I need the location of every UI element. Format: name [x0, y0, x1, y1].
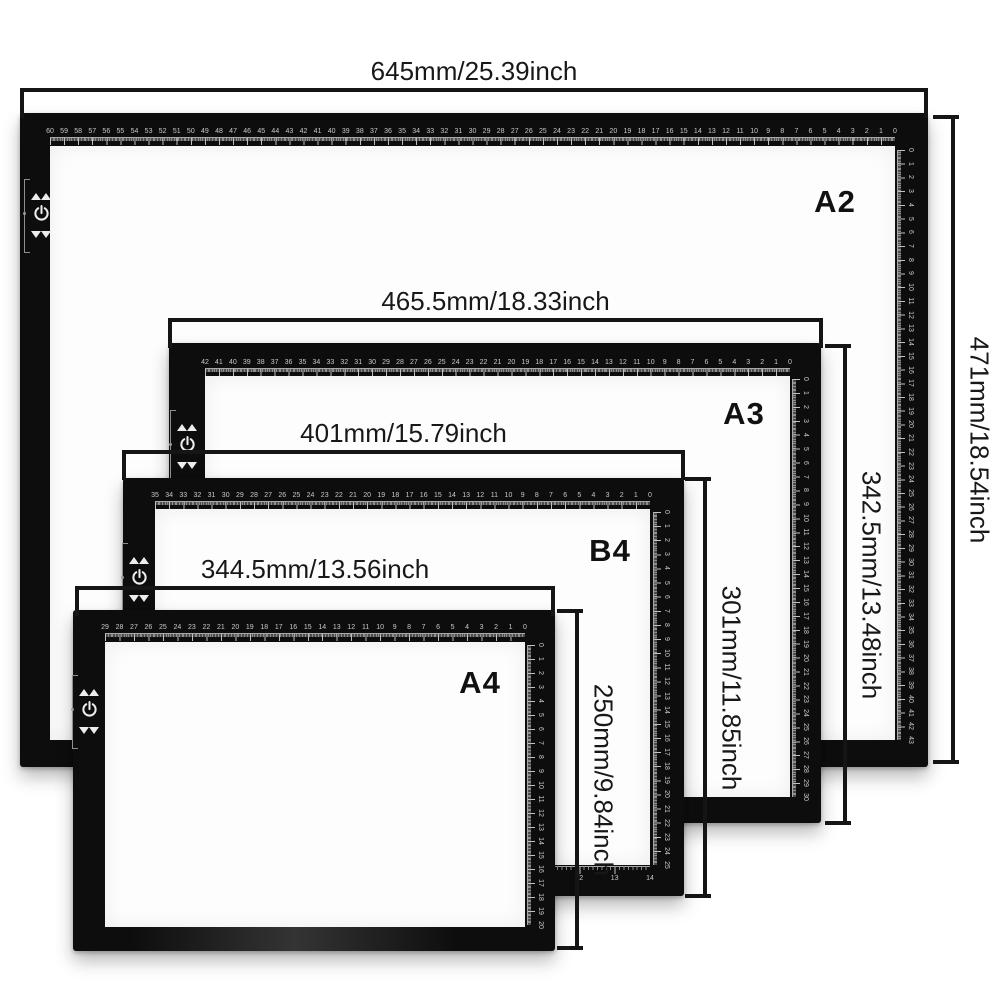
brightness-up-icon: [129, 540, 149, 558]
board-a2-label: A2: [814, 184, 856, 220]
width-dimension-a4: 344.5mm/13.56inch: [75, 586, 555, 590]
height-dimension-b4: 301mm/11.85inch: [703, 477, 707, 898]
power-icon: [81, 701, 98, 723]
board-a3-label: A3: [723, 396, 765, 432]
width-dimension-a3-label: 465.5mm/18.33inch: [381, 286, 609, 317]
a3-right-ruler: 0123456789101112131415161718192021222324…: [792, 379, 809, 797]
a2-right-ruler: 0123456789101112131415161718192021222324…: [897, 150, 914, 740]
board-a2-controls: [31, 176, 51, 256]
b4-right-ruler: 0123456789101112131415161718192021222324…: [653, 512, 670, 865]
power-icon: [179, 436, 196, 458]
width-dimension-b4-label: 401mm/15.79inch: [300, 418, 507, 449]
brightness-up-icon: [79, 672, 99, 690]
width-dimension-a4-label: 344.5mm/13.56inch: [201, 554, 429, 585]
a4-right-ruler: 01234567891011121314151617181920: [527, 645, 544, 925]
a4-top-ruler: 2928272625242322212019181716151413121110…: [105, 624, 525, 641]
indicator-dot: [23, 212, 26, 215]
indicator-dot: [169, 443, 172, 446]
brightness-down-icon: [79, 734, 99, 752]
indicator-dot: [71, 708, 74, 711]
width-dimension-a3: 465.5mm/18.33inch: [168, 318, 823, 322]
a3-top-ruler: 4241403938373635343332313029282726252423…: [205, 359, 790, 376]
light-pad-size-comparison-diagram: 6059585756555453525150494847464544434241…: [0, 0, 1000, 1000]
board-a4-controls: [79, 672, 99, 752]
board-b4-label: B4: [589, 533, 631, 569]
board-a4-label: A4: [459, 665, 501, 701]
height-dimension-a2-label: 471mm/18.54inch: [964, 336, 995, 543]
brightness-up-icon: [31, 176, 51, 194]
b4-top-ruler: 3534333231302928272625242322212019181716…: [155, 492, 650, 509]
height-dimension-a3-label: 342.5mm/13.48inch: [856, 470, 887, 698]
board-b4-controls: [129, 540, 149, 620]
height-dimension-a4: 250mm/9.84inch: [575, 609, 579, 950]
height-dimension-a4-label: 250mm/9.84inch: [588, 683, 619, 875]
power-icon: [33, 205, 50, 227]
a2-top-ruler: 6059585756555453525150494847464544434241…: [50, 128, 895, 145]
width-dimension-b4: 401mm/15.79inch: [122, 450, 685, 454]
brightness-down-icon: [31, 238, 51, 256]
board-a3-controls: [177, 407, 197, 487]
width-dimension-a2: 645mm/25.39inch: [20, 88, 928, 92]
brightness-up-icon: [177, 407, 197, 425]
width-dimension-a2-label: 645mm/25.39inch: [371, 56, 578, 87]
height-dimension-b4-label: 301mm/11.85inch: [716, 585, 747, 790]
indicator-dot: [121, 576, 124, 579]
height-dimension-a3: 342.5mm/13.48inch: [843, 344, 847, 825]
board-a4: 2928272625242322212019181716151413121110…: [73, 610, 555, 951]
height-dimension-a2: 471mm/18.54inch: [951, 115, 955, 764]
